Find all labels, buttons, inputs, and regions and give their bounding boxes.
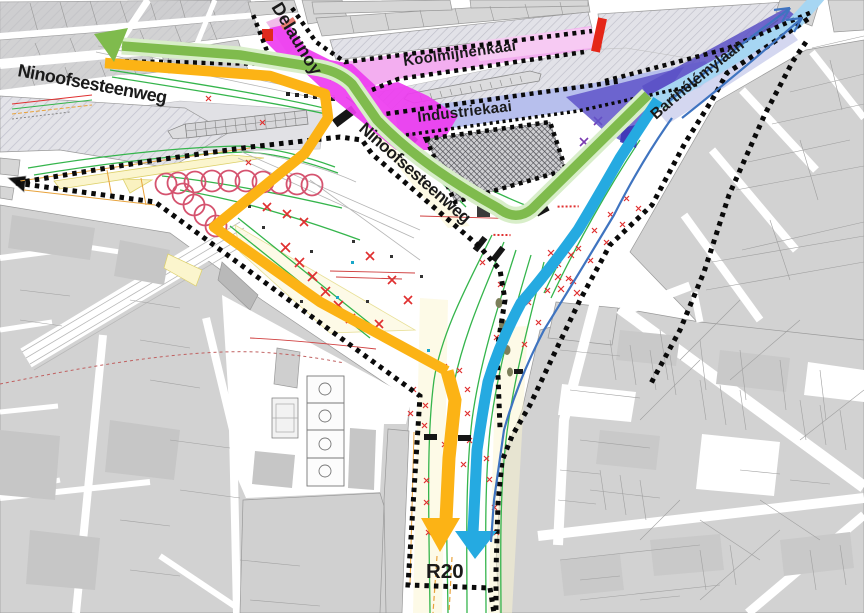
svg-text:R20: R20 [426, 560, 464, 583]
